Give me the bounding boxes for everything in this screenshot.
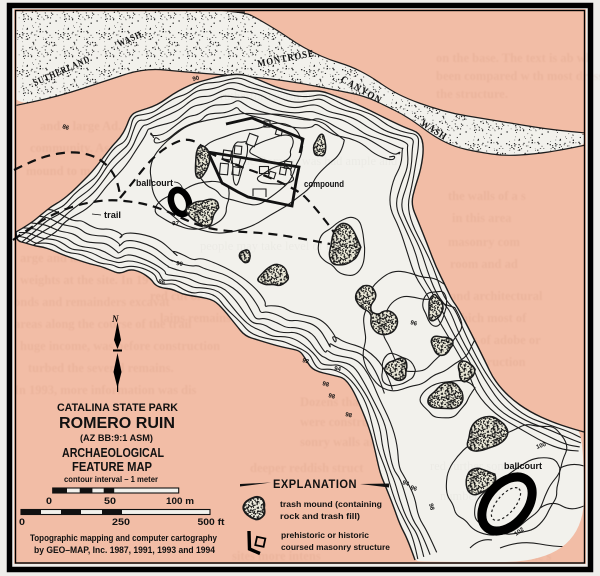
- svg-text:by GEO–MAP, Inc. 1987, 1991, 1: by GEO–MAP, Inc. 1987, 1991, 1993 and 19…: [34, 545, 215, 555]
- svg-text:lains remains: lains remains: [160, 311, 231, 325]
- svg-text:100 m: 100 m: [166, 496, 194, 507]
- svg-text:50: 50: [104, 496, 116, 507]
- svg-text:the structure.: the structure.: [436, 87, 508, 101]
- svg-text:trash mound (containing: trash mound (containing: [280, 499, 382, 509]
- svg-text:0: 0: [19, 517, 25, 528]
- svg-text:and a large Ad.: and a large Ad.: [40, 119, 121, 133]
- svg-text:0: 0: [46, 496, 52, 507]
- svg-text:ARCHAEOLOGICAL: ARCHAEOLOGICAL: [62, 446, 164, 460]
- svg-text:250: 250: [112, 517, 130, 528]
- svg-text:deeper reddish struct: deeper reddish struct: [250, 461, 364, 475]
- svg-text:trail: trail: [104, 210, 121, 220]
- svg-text:N: N: [111, 314, 119, 324]
- svg-text:Topographic mapping and comput: Topographic mapping and computer cartogr…: [30, 533, 217, 543]
- svg-text:turbed the several remains.: turbed the several remains.: [28, 361, 174, 375]
- svg-text:rock and trash fill): rock and trash fill): [280, 511, 360, 521]
- svg-text:compound: compound: [304, 179, 344, 189]
- svg-text:EXPLANATION: EXPLANATION: [273, 479, 357, 491]
- svg-text:weights at the site. In 19: weights at the site. In 19: [20, 273, 148, 287]
- svg-text:in this area: in this area: [452, 211, 512, 225]
- svg-text:CATALINA STATE PARK: CATALINA STATE PARK: [57, 402, 178, 414]
- svg-text:room and ad: room and ad: [450, 257, 518, 271]
- svg-text:ROMERO RUIN: ROMERO RUIN: [59, 415, 175, 432]
- svg-text:contour interval – 1 meter: contour interval – 1 meter: [64, 474, 159, 484]
- svg-text:the walls of a s: the walls of a s: [448, 189, 526, 203]
- svg-text:In 1993, more information was: In 1993, more information was dis: [14, 383, 197, 397]
- svg-text:97: 97: [172, 221, 180, 228]
- svg-text:prehistoric or historic: prehistoric or historic: [281, 530, 369, 540]
- svg-text:and architectural: and architectural: [450, 289, 543, 303]
- svg-text:ballcourt: ballcourt: [136, 178, 173, 188]
- svg-text:onds and remainders excavat: onds and remainders excavat: [14, 295, 171, 309]
- svg-text:500 ft: 500 ft: [198, 517, 226, 528]
- svg-text:been compared w th most dresse: been compared w th most dressed gro: [436, 69, 600, 83]
- svg-text:coursed masonry structure: coursed masonry structure: [281, 542, 390, 552]
- svg-text:FEATURE MAP: FEATURE MAP: [72, 460, 152, 474]
- svg-text:ballcourt: ballcourt: [504, 461, 542, 471]
- svg-text:(AZ BB:9:1 ASM): (AZ BB:9:1 ASM): [80, 433, 153, 444]
- svg-text:on the base. The text is ab wh: on the base. The text is ab wh: [436, 51, 593, 65]
- svg-text:masonry com: masonry com: [448, 235, 520, 249]
